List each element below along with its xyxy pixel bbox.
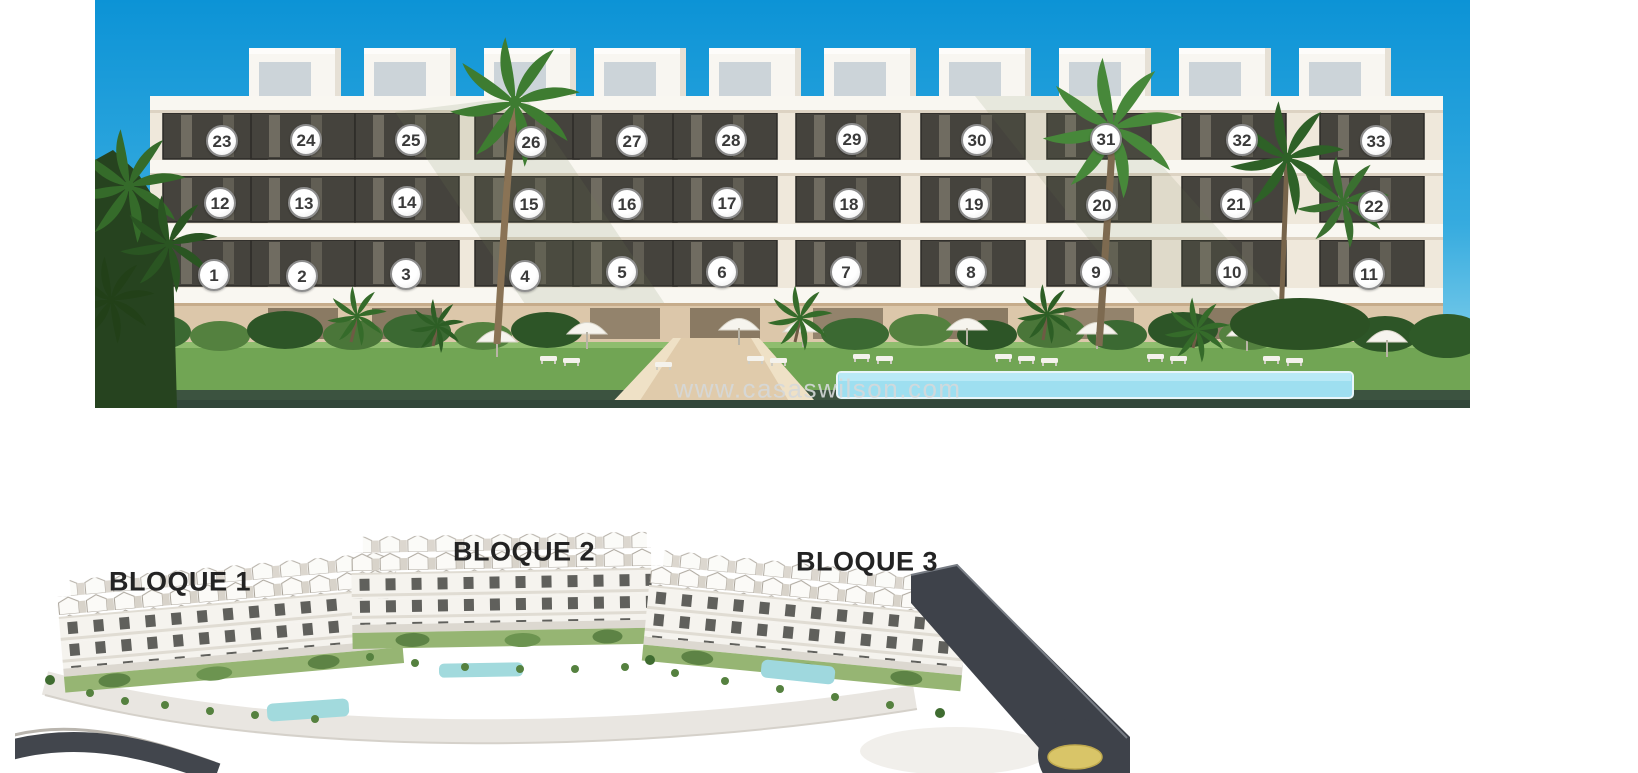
- unit-marker-7: 7: [830, 256, 862, 288]
- unit-marker-14: 14: [391, 186, 423, 218]
- unit-marker-19: 19: [958, 188, 990, 220]
- unit-marker-24: 24: [290, 124, 322, 156]
- unit-marker-27: 27: [616, 125, 648, 157]
- unit-marker-16: 16: [611, 188, 643, 220]
- block-labels: BLOQUE 1BLOQUE 2BLOQUE 3: [15, 505, 1130, 773]
- unit-marker-13: 13: [288, 187, 320, 219]
- siteplan-photo: BLOQUE 1BLOQUE 2BLOQUE 3: [15, 505, 1130, 773]
- unit-marker-23: 23: [206, 125, 238, 157]
- watermark: www.casaswilson.com: [674, 374, 961, 405]
- page: 1234567891011121314151617181920212223242…: [0, 0, 1638, 773]
- unit-marker-4: 4: [509, 260, 541, 292]
- unit-marker-11: 11: [1353, 258, 1385, 290]
- unit-marker-17: 17: [711, 187, 743, 219]
- unit-marker-6: 6: [706, 256, 738, 288]
- unit-marker-2: 2: [286, 260, 318, 292]
- unit-marker-15: 15: [513, 188, 545, 220]
- unit-marker-10: 10: [1216, 256, 1248, 288]
- block-label-3: BLOQUE 3: [796, 547, 938, 578]
- block-label-1: BLOQUE 1: [109, 567, 251, 598]
- unit-marker-12: 12: [204, 187, 236, 219]
- block-label-2: BLOQUE 2: [453, 537, 595, 568]
- unit-marker-30: 30: [961, 124, 993, 156]
- unit-marker-20: 20: [1086, 189, 1118, 221]
- unit-marker-32: 32: [1226, 124, 1258, 156]
- unit-marker-29: 29: [836, 123, 868, 155]
- unit-markers: 1234567891011121314151617181920212223242…: [95, 0, 1470, 408]
- facade-photo: 1234567891011121314151617181920212223242…: [95, 0, 1470, 408]
- unit-marker-33: 33: [1360, 125, 1392, 157]
- unit-marker-31: 31: [1090, 123, 1122, 155]
- unit-marker-21: 21: [1220, 188, 1252, 220]
- unit-marker-5: 5: [606, 256, 638, 288]
- unit-marker-18: 18: [833, 188, 865, 220]
- unit-marker-8: 8: [955, 256, 987, 288]
- unit-marker-9: 9: [1080, 256, 1112, 288]
- unit-marker-1: 1: [198, 259, 230, 291]
- unit-marker-26: 26: [515, 126, 547, 158]
- unit-marker-3: 3: [390, 258, 422, 290]
- unit-marker-28: 28: [715, 124, 747, 156]
- unit-marker-22: 22: [1358, 190, 1390, 222]
- unit-marker-25: 25: [395, 124, 427, 156]
